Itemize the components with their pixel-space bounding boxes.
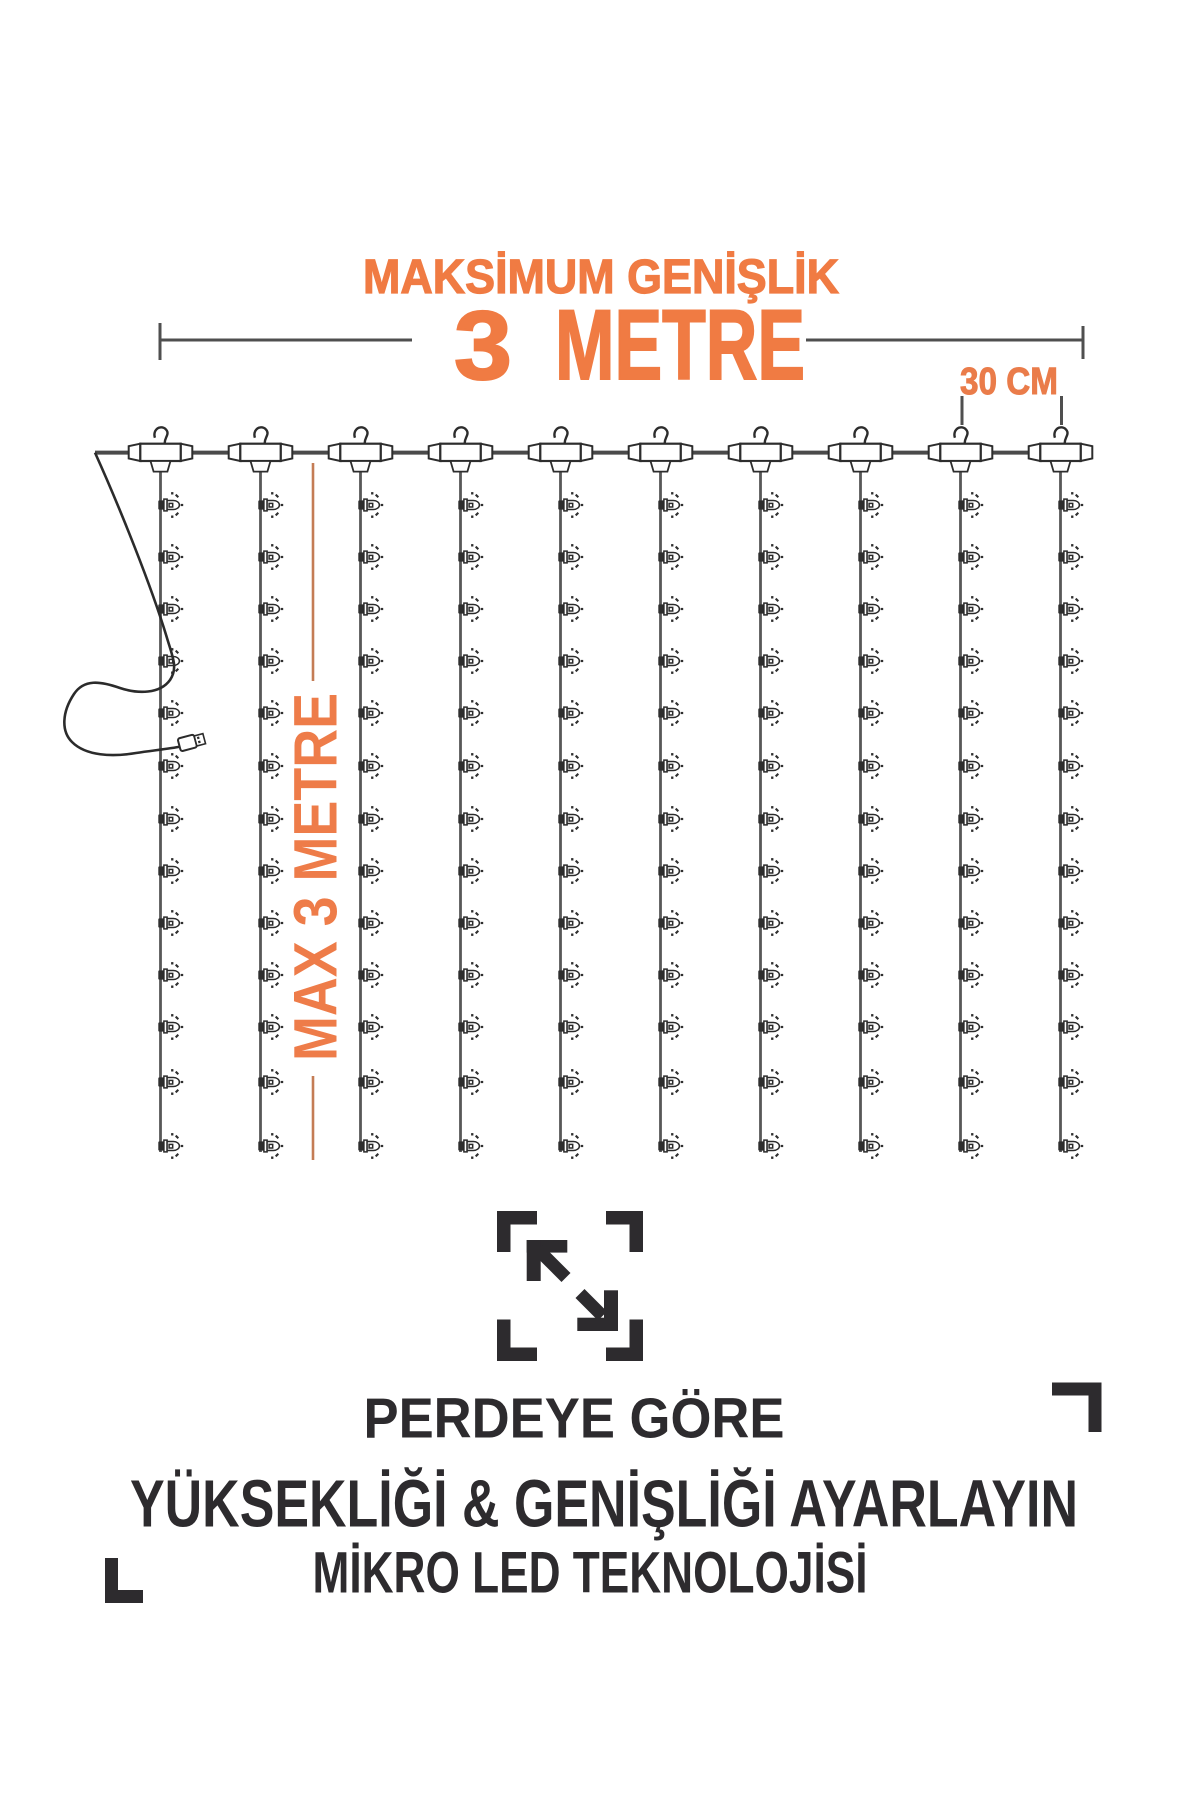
svg-text:MİKRO LED TEKNOLOJİSİ: MİKRO LED TEKNOLOJİSİ	[313, 1541, 868, 1606]
svg-text:PERDEYE GÖRE: PERDEYE GÖRE	[364, 1387, 785, 1451]
svg-text:YÜKSEKLİĞİ & GENİŞLİĞİ AYARLAY: YÜKSEKLİĞİ & GENİŞLİĞİ AYARLAYIN	[130, 1466, 1078, 1541]
svg-text:30 CM: 30 CM	[960, 361, 1058, 403]
svg-text:METRE: METRE	[555, 289, 805, 400]
svg-text:MAX 3 METRE: MAX 3 METRE	[282, 693, 350, 1061]
svg-text:3: 3	[454, 291, 512, 400]
